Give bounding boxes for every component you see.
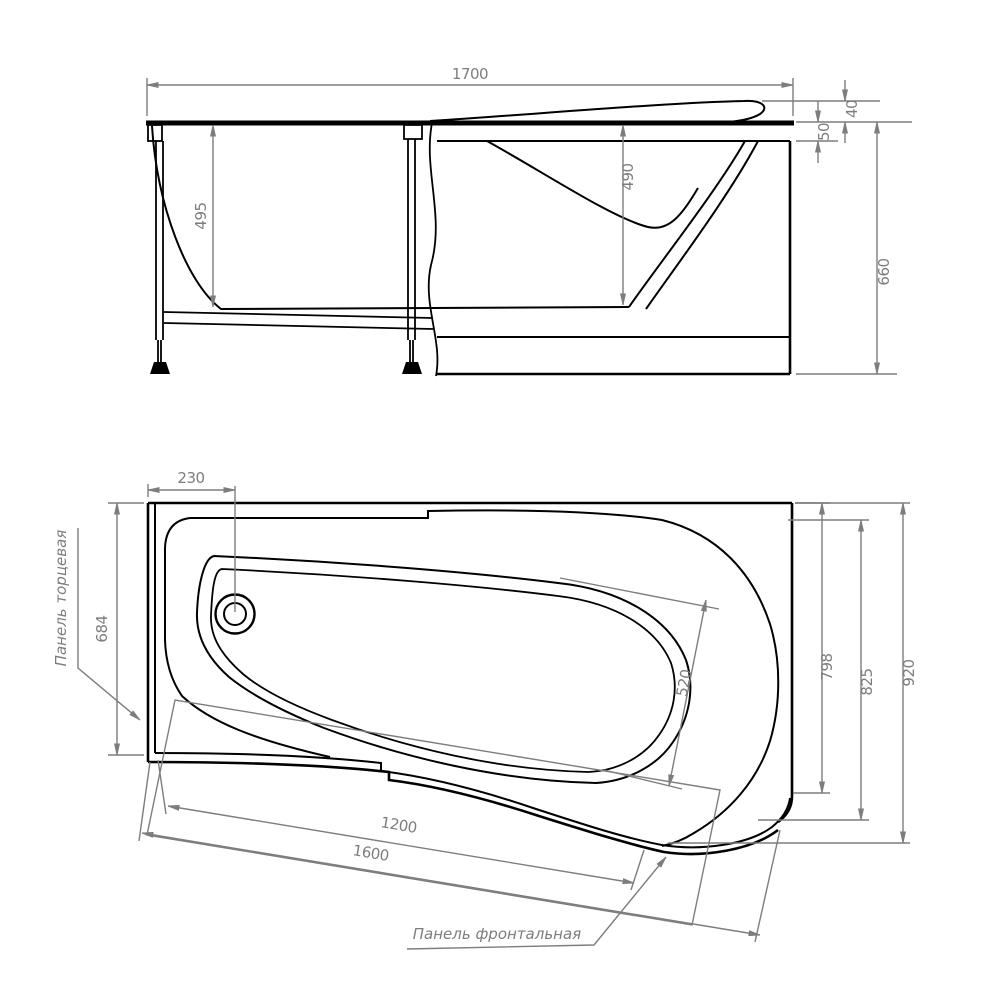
frame-leg-right [402,125,422,374]
dim-text-1700: 1700 [452,65,488,83]
dim-overall-plan-length: 1600 [139,762,780,942]
side-section-break-wave [429,123,438,376]
plan-basin-waterline [211,569,675,772]
dim-text-684: 684 [93,615,111,642]
dim-drain-offset: 230 [148,469,235,612]
dim-width-mid: 825 [758,520,876,820]
dim-width-inner: 798 [793,503,836,793]
frame-rail-lower [164,323,433,329]
dim-text-490: 490 [619,163,637,190]
leg-bracket [148,125,162,141]
dim-text-798: 798 [818,653,836,680]
dim-text-1600: 1600 [351,841,390,865]
leg-bracket [404,125,422,139]
dim-overall-length: 1700 [147,65,793,116]
front-panel-text: Панель фронтальная [413,925,581,943]
dim-text-50: 50 [815,123,833,141]
bathtub-side-view: 1700 495 490 40 50 [146,65,912,376]
side-bowl-waterline-curve [487,141,698,228]
dim-text-230: 230 [177,469,204,487]
plan-front-edge-outer [148,762,778,854]
dim-basin-width: 520 [560,578,719,789]
side-headrest-curve [430,101,764,122]
label-front-panel: Панель фронтальная [407,857,666,949]
dim-text-660: 660 [875,258,893,285]
side-backrest-line-2 [646,141,758,309]
dim-text-825: 825 [858,668,876,695]
dim-text-1200: 1200 [379,813,418,837]
dim-rim-height: 50 [815,101,833,163]
side-bowl-bottom [152,126,629,309]
plan-basin-edge [197,556,690,783]
end-panel-text: Панель торцевая [52,530,70,667]
frame-rail-upper [164,312,433,318]
dim-inner-depth: 490 [619,125,637,305]
dim-overall-height: 660 [875,122,893,374]
dim-text-495: 495 [192,202,210,229]
dim-text-920: 920 [900,659,918,686]
bathtub-drawing-svg: 1700 495 490 40 50 [0,0,1000,1000]
plan-right-edge [778,503,792,822]
dim-headrest-rise: 40 [843,80,861,143]
leg-foot [150,362,170,374]
dim-text-40: 40 [843,100,861,118]
drawing-sheet: 1700 495 490 40 50 [0,0,1000,1000]
frame-leg-left [148,125,170,374]
leg-foot [402,362,422,374]
dim-text-520: 520 [673,668,696,698]
front-panel-outline-overlay [147,700,720,925]
bathtub-plan-view: 230 684 Панель торцевая 520 798 [52,469,918,949]
side-backrest-line-1 [629,141,745,307]
